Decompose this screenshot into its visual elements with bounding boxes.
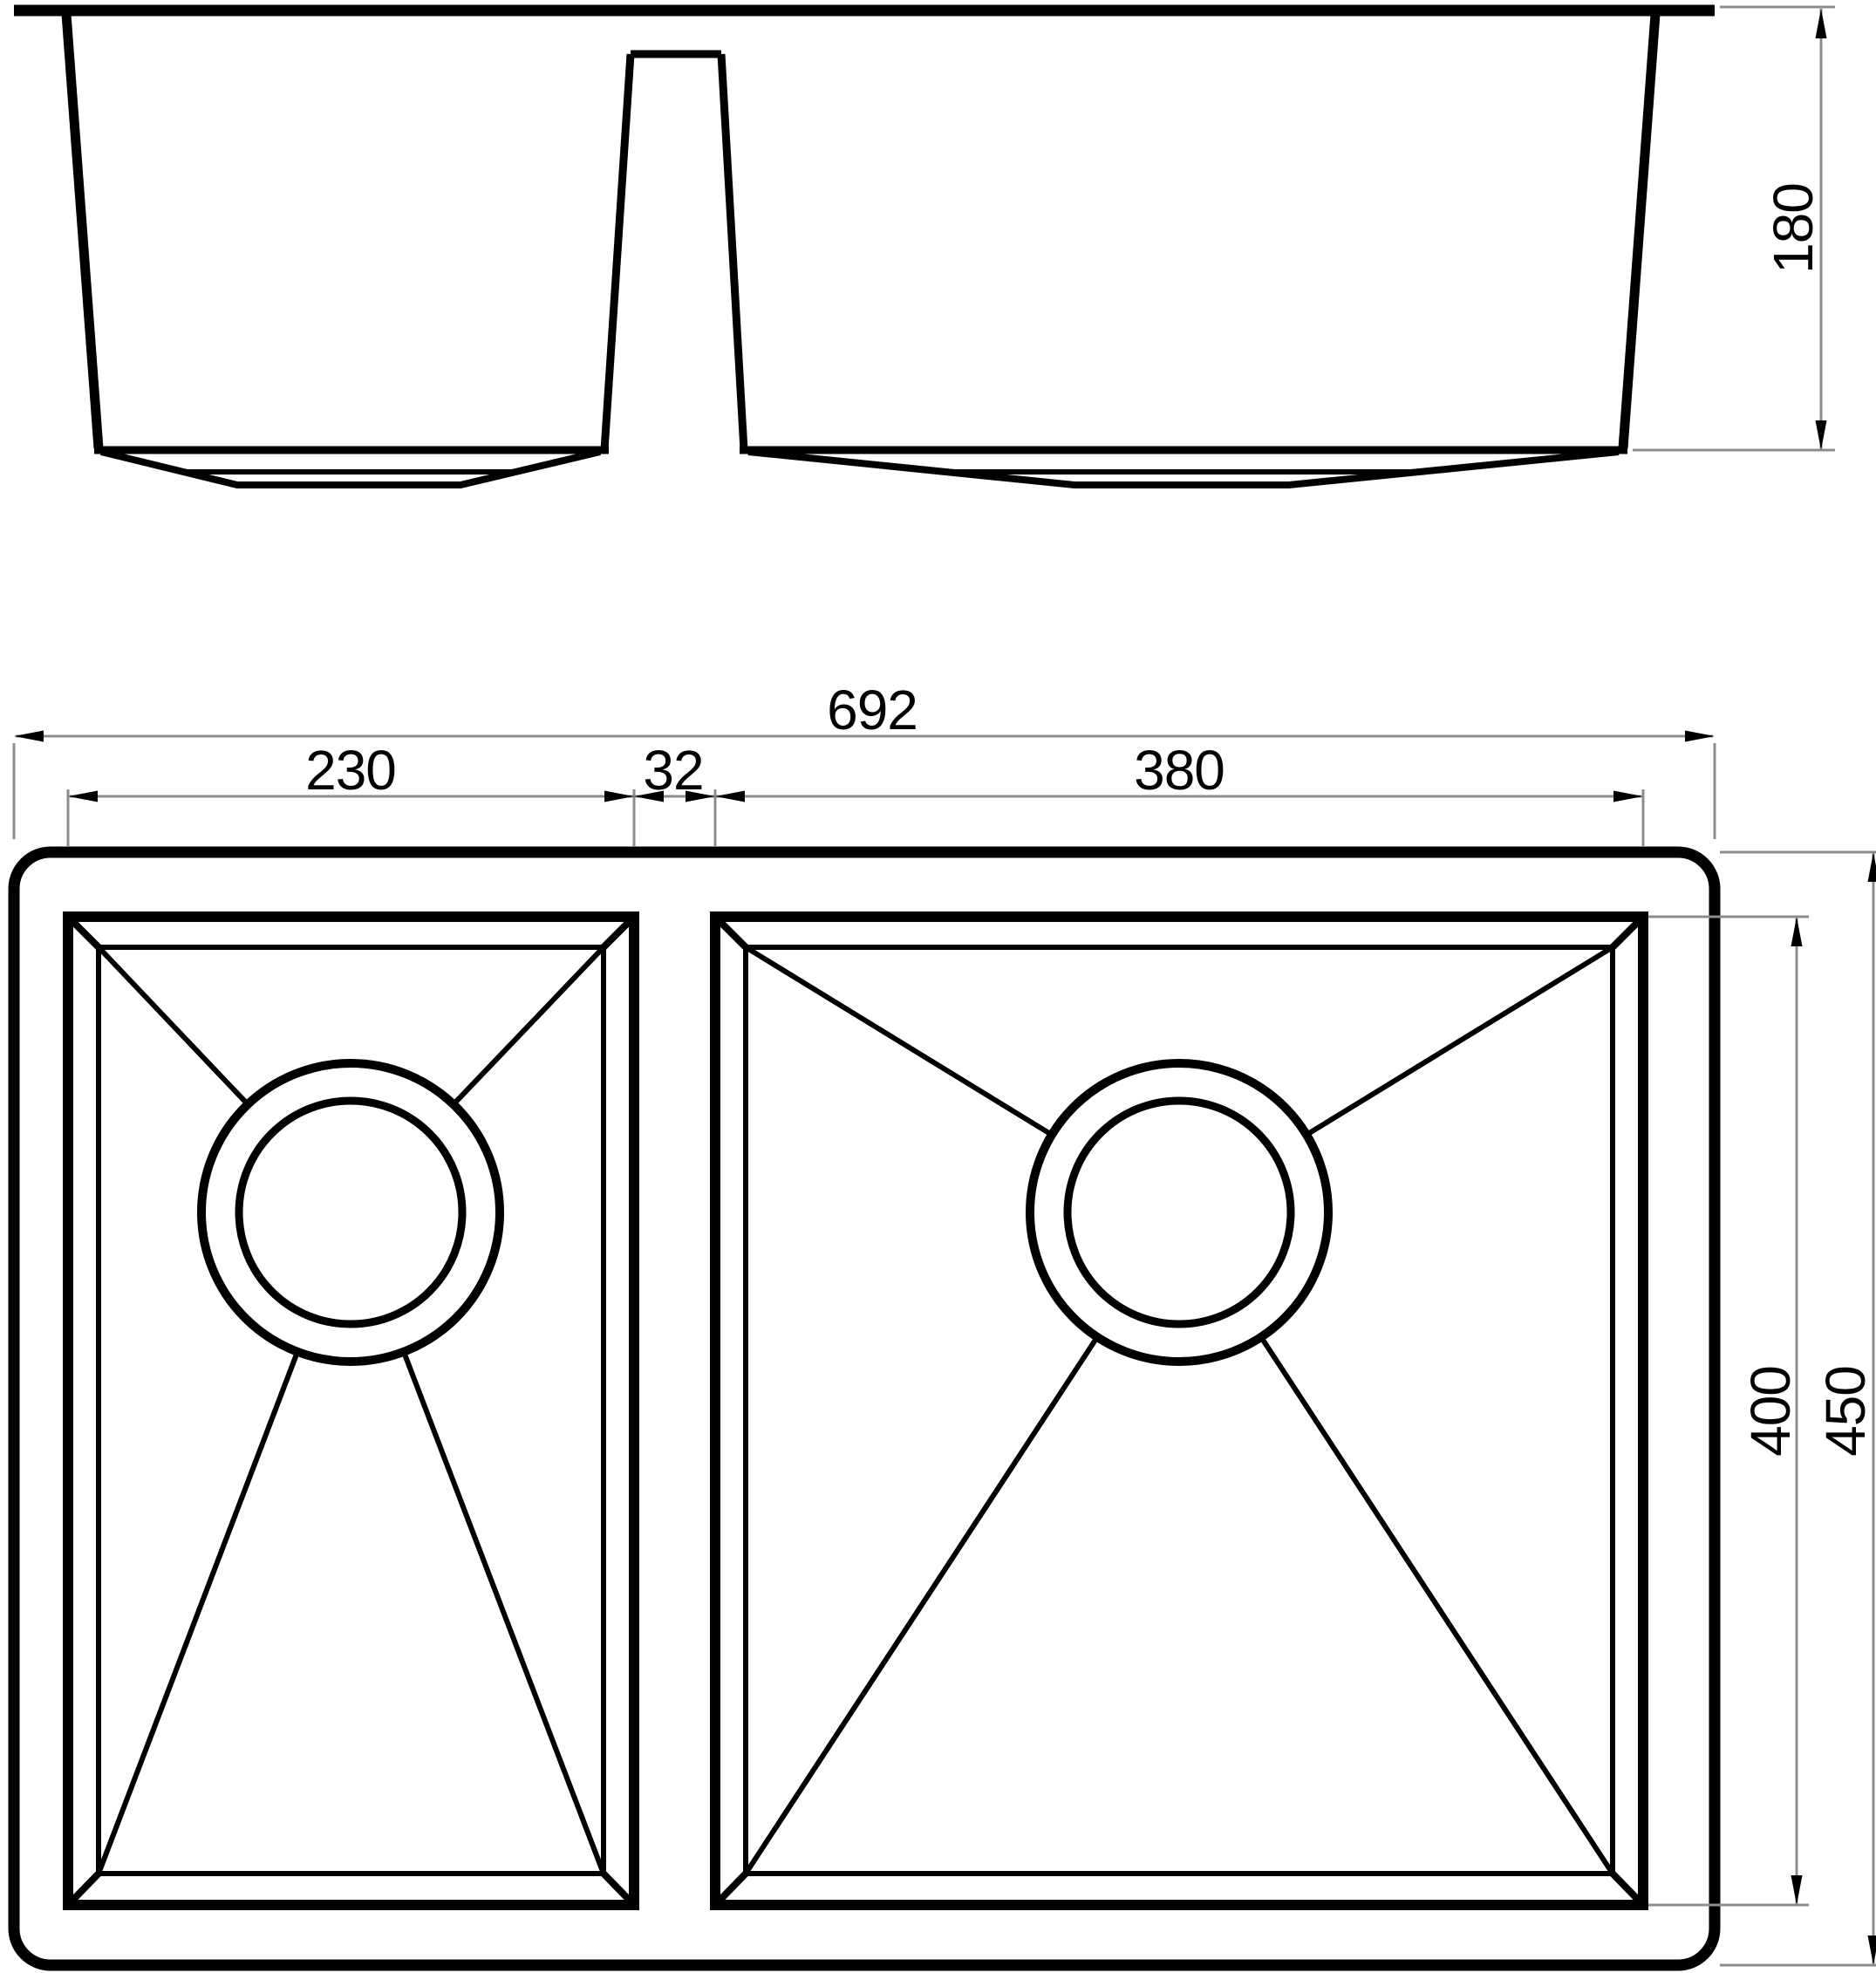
left-drain-inner-circle — [239, 1101, 462, 1324]
divider-right-wall — [721, 54, 744, 450]
fold-line — [99, 1352, 297, 1874]
dim-230-label: 230 — [305, 739, 396, 802]
dim-450-arrow-top — [1868, 852, 1876, 882]
dim-400-label: 400 — [1739, 1366, 1802, 1457]
dim-692-arrow-right — [1685, 731, 1715, 742]
dim-230: 230 — [68, 739, 634, 802]
dim-32: 32 — [634, 739, 715, 802]
dim-32-label: 32 — [643, 739, 703, 802]
left-drain — [201, 1063, 500, 1362]
left-bowl-outer-wall — [66, 14, 99, 448]
right-sump-outline — [748, 452, 1619, 485]
divider-left-wall — [604, 54, 631, 450]
left-sump-outline — [101, 452, 600, 485]
dim-230-arrow-left — [68, 791, 98, 802]
fold-line — [746, 1337, 1097, 1874]
center-divider — [604, 54, 744, 450]
left-drain-outer-circle — [201, 1063, 500, 1362]
dim-180-arrow-top — [1816, 9, 1827, 38]
left-drain-sump-profile — [101, 452, 600, 485]
fold-line — [454, 947, 604, 1104]
dim-row-230-32-380: 230 32 380 — [68, 739, 1643, 846]
fold-line — [746, 947, 1052, 1135]
fold-line — [404, 1352, 604, 1874]
dim-692-arrow-left — [14, 731, 44, 742]
drawing-sheet: 180 — [0, 0, 1876, 1973]
fold-line — [1306, 947, 1613, 1135]
right-drain — [1030, 1063, 1328, 1362]
dim-450-arrow-bottom — [1868, 1935, 1876, 1965]
left-bowl-fold-lines — [99, 947, 604, 1874]
dim-450-label: 450 — [1814, 1366, 1876, 1457]
dim-380-arrow-right — [1613, 791, 1643, 802]
dim-180-arrow-bottom — [1816, 420, 1827, 450]
dim-380-arrow-left — [715, 791, 745, 802]
dim-692-label: 692 — [827, 679, 918, 741]
dim-400: 400 — [1648, 917, 1809, 1905]
right-drain-sump-profile — [748, 452, 1619, 485]
right-drain-outer-circle — [1030, 1063, 1328, 1362]
dim-400-arrow-top — [1791, 917, 1803, 946]
plan-view: 692 230 32 380 — [14, 679, 1876, 1965]
left-bowl-bottom-rect — [99, 947, 604, 1874]
right-bowl-outer-wall — [1623, 14, 1655, 448]
right-bowl-fold-lines — [746, 947, 1613, 1874]
dim-230-arrow-right — [604, 791, 634, 802]
dim-692: 692 — [14, 679, 1715, 839]
fold-line — [99, 947, 248, 1104]
dim-180: 180 — [1633, 7, 1835, 450]
right-drain-inner-circle — [1068, 1101, 1291, 1324]
right-bowl-bottom-rect — [746, 947, 1613, 1874]
dim-180-label: 180 — [1762, 183, 1825, 274]
dim-380-label: 380 — [1134, 739, 1225, 802]
dim-380: 380 — [715, 739, 1643, 802]
dim-400-arrow-bottom — [1791, 1875, 1803, 1905]
front-elevation-view: 180 — [14, 7, 1835, 485]
sink-technical-drawing: 180 — [0, 0, 1876, 1973]
fold-line — [1261, 1337, 1613, 1874]
